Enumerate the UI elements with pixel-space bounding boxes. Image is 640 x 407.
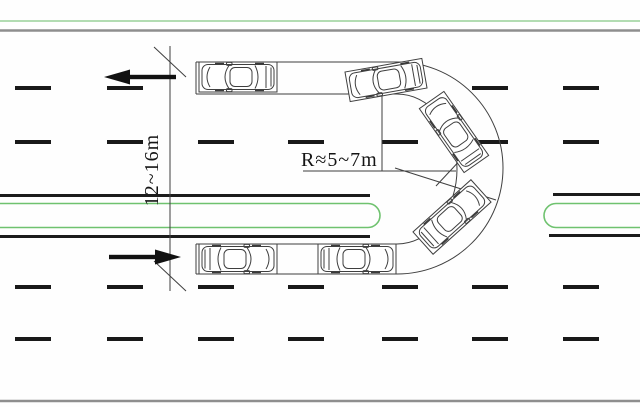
lane-dash [288,285,324,289]
lane-dash [472,337,508,341]
car-body [321,247,393,272]
lane-dash [563,86,599,90]
diagram-canvas: 12~16m R≈5~7m [0,0,640,407]
lane-dash [563,337,599,341]
car-body [202,247,274,272]
lane-dash [472,285,508,289]
uturn-road-diagram: 12~16m R≈5~7m [0,0,640,407]
lane-dash [563,285,599,289]
lane-dash [198,337,234,341]
opening-length-label: 12~16m [141,134,163,206]
lane-dash [382,285,418,289]
lane-dash [107,285,143,289]
lane-dash [472,86,508,90]
lane-dash [382,140,418,144]
car-entering-curve-bottom [318,244,396,274]
lane-dash [198,285,234,289]
car-entry-bottom-left [199,244,277,274]
lane-dash [15,285,51,289]
arrow-shaft [128,75,176,79]
car-body [202,65,274,90]
lane-dash [288,337,324,341]
lane-dash [198,140,234,144]
lane-dash [107,140,143,144]
turn-radius-label: R≈5~7m [301,149,378,171]
car-exit-top-left [199,62,277,92]
lane-dash [15,337,51,341]
lane-dash [563,140,599,144]
lane-dash [288,140,324,144]
lane-dash [107,86,143,90]
arrow-shaft [109,255,157,259]
lane-dash [15,140,51,144]
lane-dash [382,337,418,341]
lane-dash [15,86,51,90]
lane-dash [107,337,143,341]
